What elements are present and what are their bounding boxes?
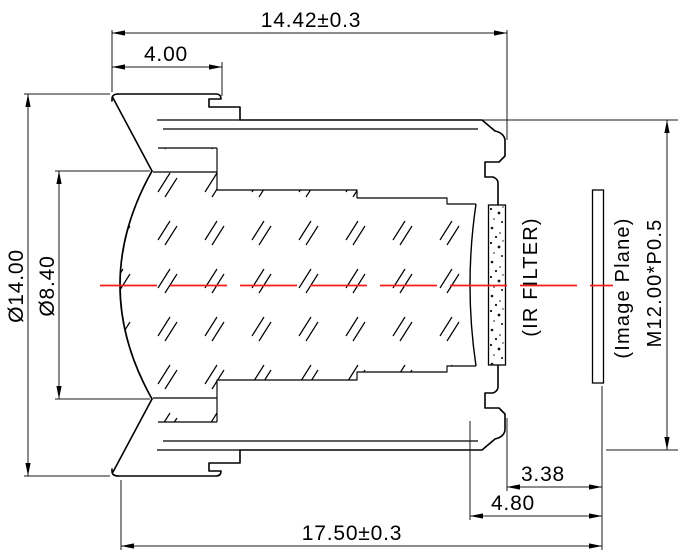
- dim-total-length: 17.50±0.3: [302, 522, 402, 545]
- dim-overall-length: 14.42±0.3: [261, 9, 361, 32]
- lens-cross-section-svg: 14.42±0.3 4.00 Ø14.00 Ø8.40 3.38 4.80 17…: [0, 0, 682, 553]
- dim-thread-end-to-image: 3.38: [521, 463, 565, 486]
- lens-drawing-canvas: 14.42±0.3 4.00 Ø14.00 Ø8.40 3.38 4.80 17…: [0, 0, 682, 553]
- dim-outer-diameter: Ø14.00: [5, 249, 28, 323]
- image-plane-bar: [593, 190, 604, 383]
- dim-filter-to-image: 4.80: [491, 492, 535, 515]
- dim-aperture-diameter: Ø8.40: [36, 255, 59, 316]
- ir-filter-label: (IR FILTER): [520, 217, 542, 337]
- thread-spec-label: M12.00*P0.5: [644, 219, 666, 348]
- image-plane-label: (Image Plane): [612, 217, 634, 358]
- dim-flange-thickness: 4.00: [144, 43, 188, 66]
